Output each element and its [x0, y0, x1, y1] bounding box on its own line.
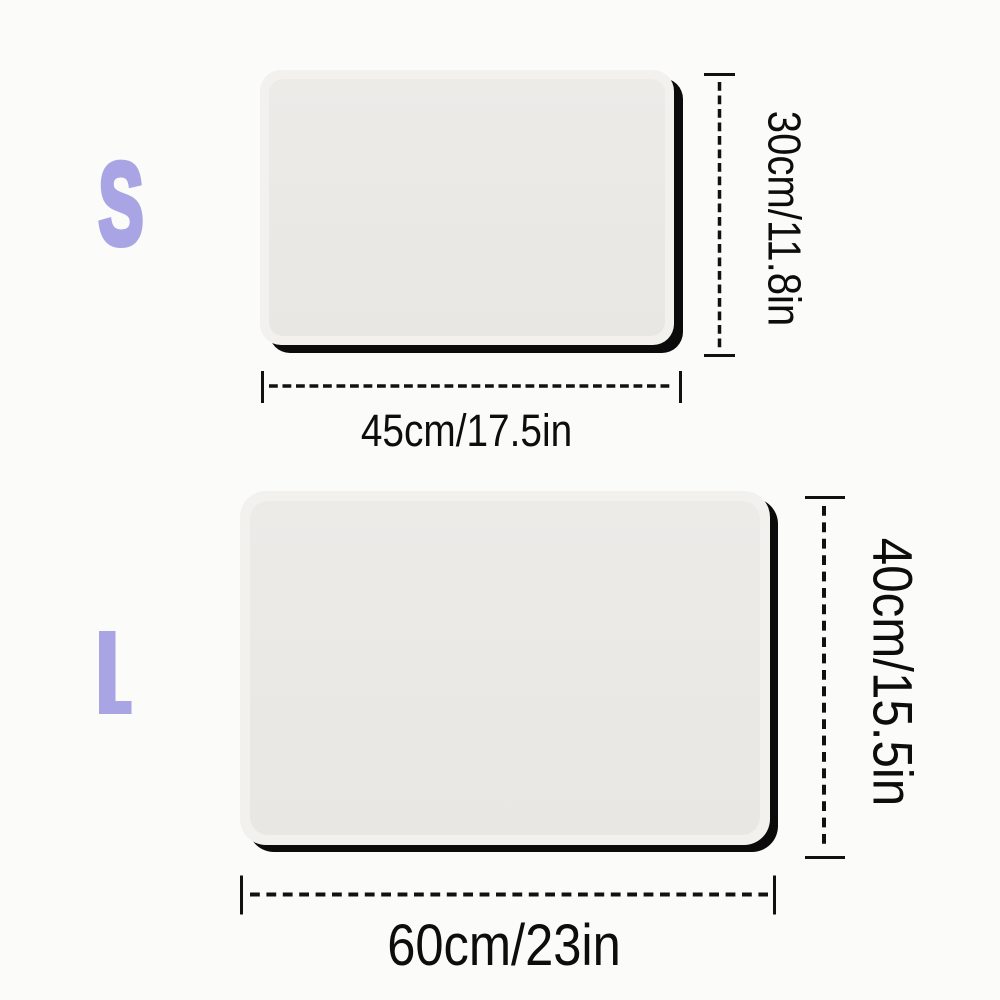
- svg-text:40cm/15.5in: 40cm/15.5in: [861, 538, 924, 806]
- svg-text:30cm/11.8in: 30cm/11.8in: [758, 111, 809, 326]
- svg-text:S: S: [98, 140, 143, 269]
- svg-text:45cm/17.5in: 45cm/17.5in: [361, 405, 572, 455]
- svg-text:60cm/23in: 60cm/23in: [387, 913, 621, 978]
